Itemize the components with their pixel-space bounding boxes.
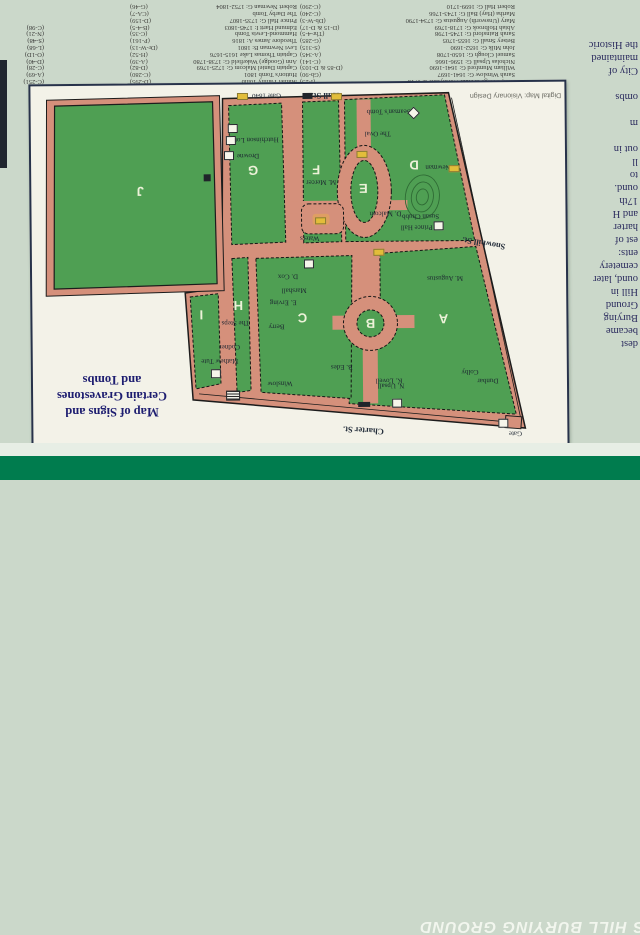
grave-label: Codner xyxy=(219,343,240,350)
grave-label: Seaman's Tomb xyxy=(367,108,411,115)
section-letter-h: H xyxy=(234,299,244,312)
grave-label: Winslow xyxy=(267,380,292,387)
grave-marker xyxy=(226,136,236,145)
grave-label: Dunbar xyxy=(477,377,498,384)
grave-label: Hutchinson Lot xyxy=(235,136,279,143)
grave-label: Waters xyxy=(300,234,319,241)
street-label: Charter St. xyxy=(343,425,384,436)
grave-label: Berry xyxy=(268,323,284,330)
section-letter-a: A xyxy=(439,312,449,325)
grave-label: M. Augustus xyxy=(427,274,463,281)
sign-marker xyxy=(356,151,367,158)
grave-label: The Steps xyxy=(222,319,250,326)
grave-label: Gate 1840 xyxy=(252,92,281,99)
section-letter-c: C xyxy=(298,311,308,324)
banner-title: S HILL BURYING GROUND xyxy=(404,913,640,935)
gate-bar xyxy=(358,402,370,407)
banner-strip: S HILL BURYING GROUND xyxy=(0,456,640,480)
sign-marker xyxy=(237,93,248,100)
section-letter-j: J xyxy=(137,185,144,198)
dark-marker xyxy=(204,174,211,181)
sign-edge-band xyxy=(0,443,640,457)
grave-label: D. Malcom xyxy=(370,210,402,217)
grave-marker xyxy=(434,221,444,230)
grave-label: E. Erving xyxy=(270,299,297,306)
grave-marker xyxy=(228,124,238,133)
section-letter-i: I xyxy=(200,308,204,321)
gate-marker xyxy=(498,419,508,428)
gate-bar xyxy=(302,93,312,99)
grave-label: Prince Hall xyxy=(401,223,433,230)
sign-marker xyxy=(331,93,342,100)
grave-label: N. Upsall xyxy=(378,382,405,389)
sign-marker xyxy=(449,165,460,172)
section-letter-f: F xyxy=(312,163,320,176)
section-letter-e: E xyxy=(359,182,368,195)
grave-label: Susan Chubb xyxy=(402,212,439,219)
section-letter-g: G xyxy=(248,164,258,177)
photo-of-cemetery-map-sign: { "banner": { "visible_text": "S HILL BU… xyxy=(0,0,640,480)
grave-marker xyxy=(224,151,234,160)
grave-label: M. Mercer xyxy=(306,178,336,185)
grave-label: The Oval xyxy=(365,130,391,137)
map-title: Map of Signs and Certain Gravestones and… xyxy=(50,330,174,420)
street-label: Snowhill St. xyxy=(462,236,506,252)
grave-label: Mathew Tute xyxy=(201,357,238,364)
section-letter-b: B xyxy=(366,317,376,330)
grave-marker xyxy=(211,369,221,378)
grave-label: B. Edes xyxy=(331,363,353,370)
grave-label: Gate xyxy=(509,430,522,437)
sign-marker xyxy=(373,249,384,256)
grave-label: Drowne xyxy=(237,152,260,159)
grave-marker xyxy=(392,399,402,408)
grave-label: Colby xyxy=(461,368,478,375)
grave-label: Marshall xyxy=(282,286,307,293)
grave-label: D. Cox xyxy=(278,273,298,280)
hatched-structure xyxy=(226,391,240,401)
grave-marker xyxy=(304,259,314,268)
credit-line: Digital Map: Visionary Design xyxy=(470,91,561,99)
section-letter-d: D xyxy=(409,158,419,171)
sign-marker xyxy=(315,217,326,224)
